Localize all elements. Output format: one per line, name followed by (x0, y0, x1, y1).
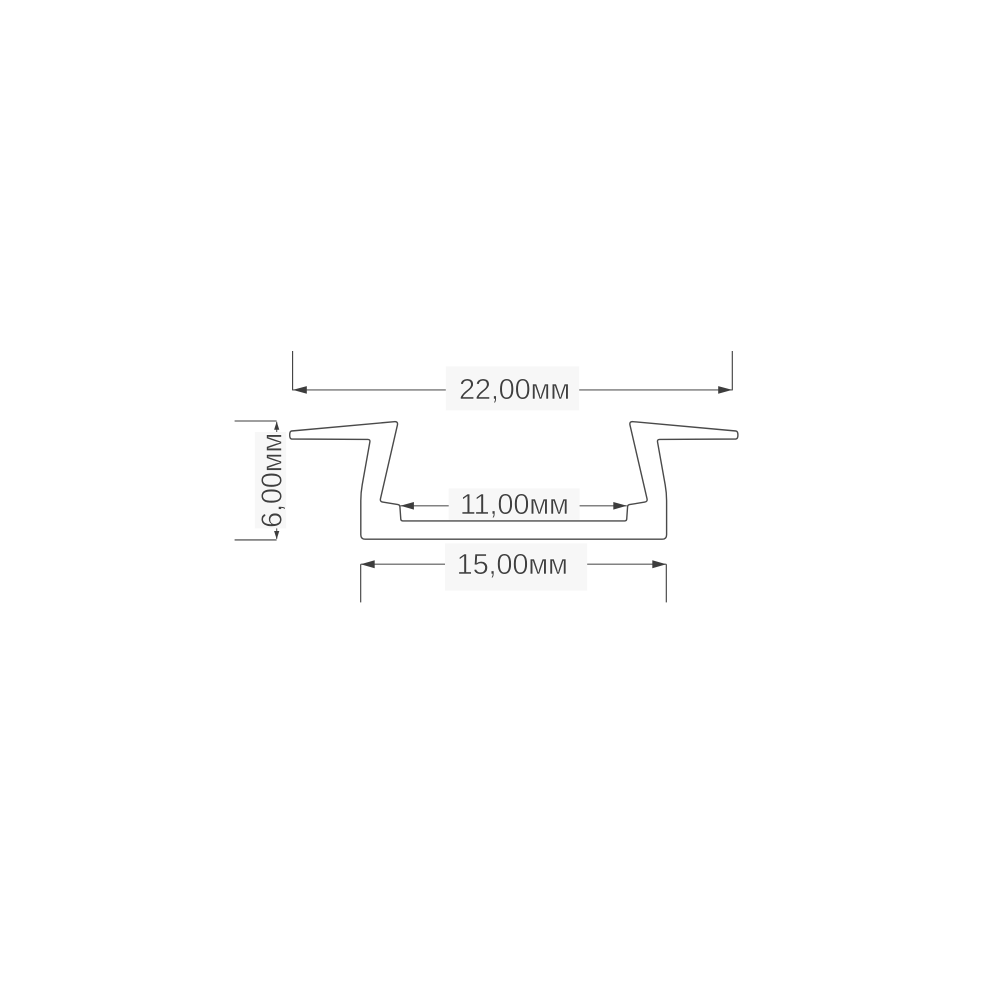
svg-text:15,00мм: 15,00мм (457, 549, 568, 581)
svg-text:11,00мм: 11,00мм (460, 489, 569, 521)
svg-text:22,00мм: 22,00мм (459, 374, 570, 406)
svg-text:6,00мм: 6,00мм (257, 433, 289, 528)
